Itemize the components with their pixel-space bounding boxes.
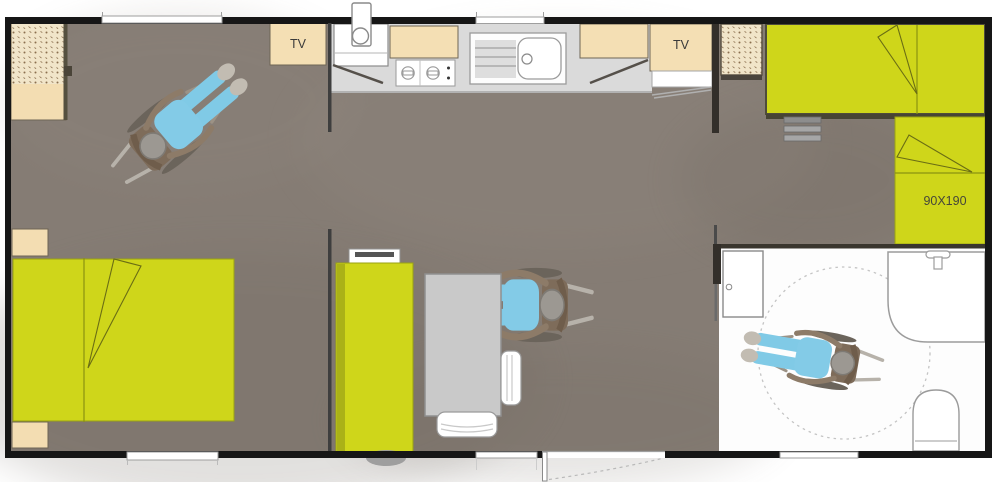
svg-text:90X190: 90X190 <box>923 194 966 208</box>
svg-text:TV: TV <box>290 37 307 51</box>
svg-text:TV: TV <box>673 38 690 52</box>
